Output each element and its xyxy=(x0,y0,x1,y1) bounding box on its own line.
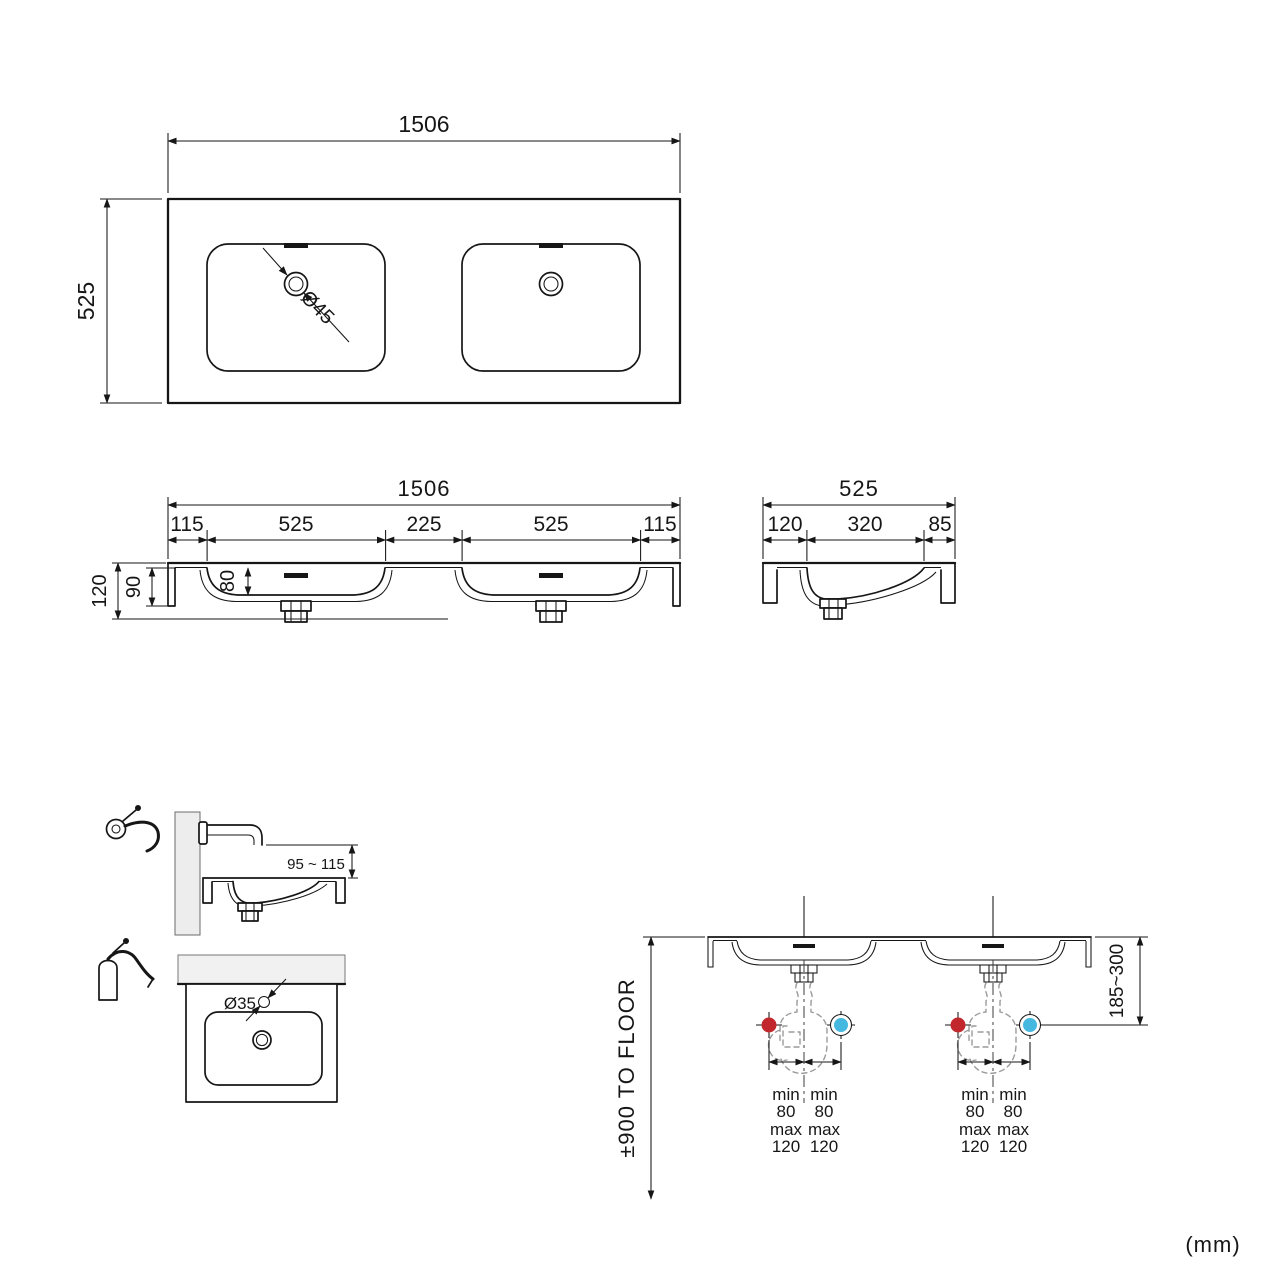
deck-tap-icon-spout-tip xyxy=(148,979,153,987)
max-value: 120 xyxy=(961,1137,989,1156)
max-value: 120 xyxy=(772,1137,800,1156)
hot-water-point xyxy=(951,1018,966,1033)
max-value: 120 xyxy=(810,1137,838,1156)
tap-hole-label: Ø35 xyxy=(224,994,256,1013)
front-total-height-label: 120 xyxy=(89,574,111,607)
min-value: 80 xyxy=(777,1102,796,1121)
right-bowl-plan xyxy=(462,244,640,371)
side-seg2-label: 320 xyxy=(847,513,882,536)
top-width-dimension: 1506 xyxy=(168,111,680,193)
top-view: Ø45 1506 525 xyxy=(73,111,680,403)
deck-tap-detail: Ø35 xyxy=(99,938,345,1102)
side-section: 525 120 320 85 xyxy=(763,476,955,619)
side-width-label: 525 xyxy=(839,476,879,501)
cold-water-point xyxy=(1023,1018,1037,1032)
front-right-overflow xyxy=(539,573,563,578)
front-right-apron xyxy=(673,563,680,606)
front-right-bowl-inner xyxy=(462,568,640,595)
floor-height-label: ±900 TO FLOOR xyxy=(614,978,639,1158)
hot-water-point xyxy=(762,1018,777,1033)
side-bowl-inner xyxy=(807,568,924,599)
front-seg2-label: 525 xyxy=(278,513,313,536)
technical-drawing-sheet: Ø45 1506 525 xyxy=(0,0,1280,1280)
deck-wall-band xyxy=(178,955,345,984)
front-segment-dimensions: 115 525 225 525 115 xyxy=(168,513,680,561)
min-value: 80 xyxy=(966,1102,985,1121)
wall-detail-basin-section xyxy=(203,878,345,921)
side-right-apron xyxy=(941,563,955,603)
supply-offset-dimension-left: min 80 max 120 min 80 max 120 xyxy=(769,1040,841,1156)
front-elevation: 1506 115 525 225 525 115 120 90 80 xyxy=(89,476,680,622)
left-bowl-plan xyxy=(207,244,385,371)
front-basin-depth-label: 80 xyxy=(217,570,239,592)
spout-height-label: 95 ~ 115 xyxy=(287,856,345,873)
deck-tap-icon xyxy=(99,938,153,1000)
right-overflow-slot xyxy=(539,243,563,248)
wall-tap-icon xyxy=(107,805,159,851)
trap-depth-label: 185~300 xyxy=(1107,944,1128,1019)
side-seg3-label: 85 xyxy=(928,513,951,536)
min-value: 80 xyxy=(815,1102,834,1121)
top-width-label: 1506 xyxy=(398,111,449,137)
top-depth-label: 525 xyxy=(73,282,99,320)
installation-view: min 80 max 120 min 80 max 120 min 80 max… xyxy=(614,896,1148,1199)
wall-tap-icon-handle xyxy=(123,810,136,821)
left-overflow-slot xyxy=(284,243,308,248)
max-value: 120 xyxy=(999,1137,1027,1156)
front-left-apron xyxy=(168,563,175,606)
front-height-dimensions: 120 90 80 xyxy=(89,563,448,619)
spout-height-dimension: 95 ~ 115 xyxy=(266,845,358,878)
supply-points-right-basin xyxy=(945,1011,1044,1039)
front-seg4-label: 525 xyxy=(533,513,568,536)
drawing-canvas: Ø45 1506 525 xyxy=(0,0,1280,1280)
front-seg1-label: 115 xyxy=(170,513,203,536)
wall-section xyxy=(175,812,200,935)
side-left-apron xyxy=(763,563,777,603)
install-basin-profile xyxy=(708,937,1091,982)
top-depth-dimension: 525 xyxy=(73,199,162,403)
wall-tap-detail: 95 ~ 115 xyxy=(107,805,359,935)
front-left-overflow xyxy=(284,573,308,578)
trap-depth-dimension: 185~300 xyxy=(1044,937,1148,1025)
tap-centerlines xyxy=(804,896,993,937)
front-inner-height-label: 90 xyxy=(123,576,145,598)
wall-tap-icon-spout xyxy=(125,822,158,851)
side-segment-dimensions: 120 320 85 xyxy=(763,513,955,561)
side-drain-fitting xyxy=(820,599,846,619)
supply-offset-dimension-right: min 80 max 120 min 80 max 120 xyxy=(958,1040,1030,1156)
min-value: 80 xyxy=(1004,1102,1023,1121)
wall-spout xyxy=(199,822,262,845)
tap-hole xyxy=(259,997,270,1008)
wall-tap-icon-flange xyxy=(107,820,126,839)
deck-tap-icon-body xyxy=(99,961,117,1001)
cold-water-point xyxy=(834,1018,848,1032)
floor-height-dimension: ±900 TO FLOOR xyxy=(614,937,705,1199)
side-seg1-label: 120 xyxy=(767,513,802,536)
front-seg5-label: 115 xyxy=(643,513,676,536)
units-label: (mm) xyxy=(1185,1232,1240,1257)
supply-points-left-basin xyxy=(756,1011,855,1039)
front-seg3-label: 225 xyxy=(406,513,441,536)
front-width-label: 1506 xyxy=(398,476,451,501)
front-right-drain-fitting xyxy=(536,601,566,622)
